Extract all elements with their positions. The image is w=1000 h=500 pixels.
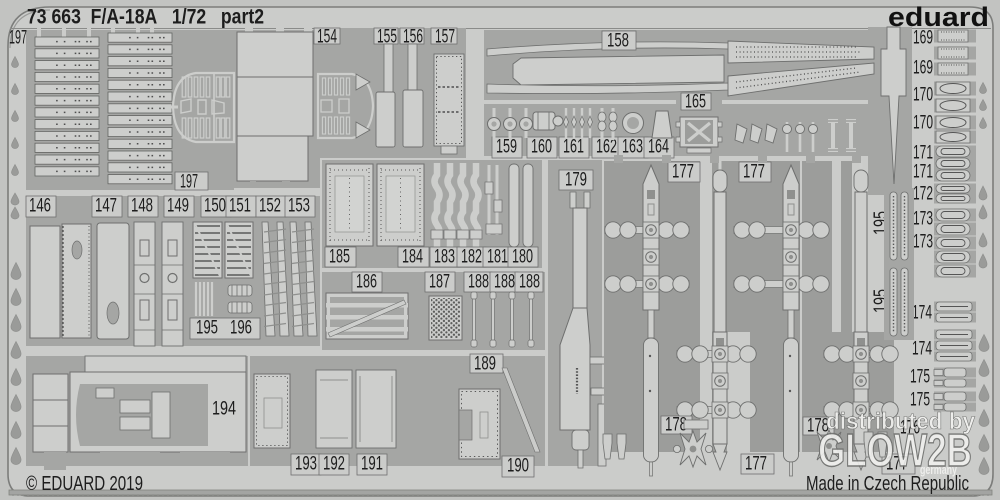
svg-text:170: 170	[913, 85, 933, 106]
svg-text:197: 197	[180, 172, 198, 193]
svg-text:175: 175	[910, 367, 930, 388]
svg-text:158: 158	[607, 31, 629, 52]
svg-text:185: 185	[329, 247, 350, 268]
svg-text:146: 146	[29, 196, 51, 217]
svg-text:171: 171	[913, 162, 933, 183]
svg-text:177: 177	[672, 162, 694, 183]
svg-text:153: 153	[288, 196, 310, 217]
svg-text:180: 180	[512, 247, 533, 268]
svg-text:160: 160	[531, 137, 552, 158]
svg-text:188: 188	[519, 272, 540, 293]
svg-text:154: 154	[317, 27, 337, 48]
svg-text:194: 194	[212, 399, 236, 420]
svg-text:173: 173	[913, 209, 933, 230]
svg-text:171: 171	[913, 143, 933, 164]
svg-text:159: 159	[496, 137, 517, 158]
svg-text:177: 177	[743, 162, 765, 183]
svg-text:186: 186	[356, 272, 377, 293]
svg-text:188: 188	[468, 272, 489, 293]
svg-text:151: 151	[229, 196, 251, 217]
svg-text:193: 193	[295, 454, 317, 475]
svg-text:192: 192	[323, 454, 345, 475]
svg-text:169: 169	[913, 58, 933, 79]
svg-text:164: 164	[648, 137, 669, 158]
svg-text:189: 189	[474, 354, 496, 375]
svg-text:174: 174	[912, 339, 932, 360]
svg-text:147: 147	[95, 196, 117, 217]
svg-text:161: 161	[563, 137, 584, 158]
svg-text:184: 184	[402, 247, 423, 268]
svg-text:191: 191	[361, 454, 383, 475]
svg-text:174: 174	[912, 303, 932, 324]
svg-text:181: 181	[487, 247, 508, 268]
svg-text:152: 152	[259, 196, 281, 217]
svg-text:73 663 F/A-18A 1/72 part2: 73 663 F/A-18A 1/72 part2	[27, 6, 264, 29]
svg-text:197: 197	[9, 28, 27, 49]
svg-text:182: 182	[461, 247, 482, 268]
svg-text:177: 177	[745, 454, 767, 475]
svg-text:165: 165	[685, 92, 706, 113]
svg-text:190: 190	[507, 456, 529, 477]
svg-text:196: 196	[230, 318, 252, 339]
svg-text:187: 187	[429, 272, 450, 293]
svg-text:195: 195	[196, 318, 218, 339]
svg-text:germany: germany	[920, 462, 958, 477]
svg-text:179: 179	[565, 170, 587, 191]
svg-text:170: 170	[913, 113, 933, 134]
svg-text:188: 188	[494, 272, 515, 293]
svg-text:© EDUARD 2019: © EDUARD 2019	[26, 473, 143, 495]
svg-text:150: 150	[204, 196, 226, 217]
svg-text:173: 173	[913, 232, 933, 253]
svg-text:148: 148	[131, 196, 153, 217]
svg-text:169: 169	[913, 28, 933, 49]
svg-text:149: 149	[167, 196, 189, 217]
svg-text:163: 163	[622, 137, 643, 158]
svg-text:183: 183	[434, 247, 455, 268]
svg-text:172: 172	[913, 184, 933, 205]
svg-text:157: 157	[435, 27, 455, 48]
